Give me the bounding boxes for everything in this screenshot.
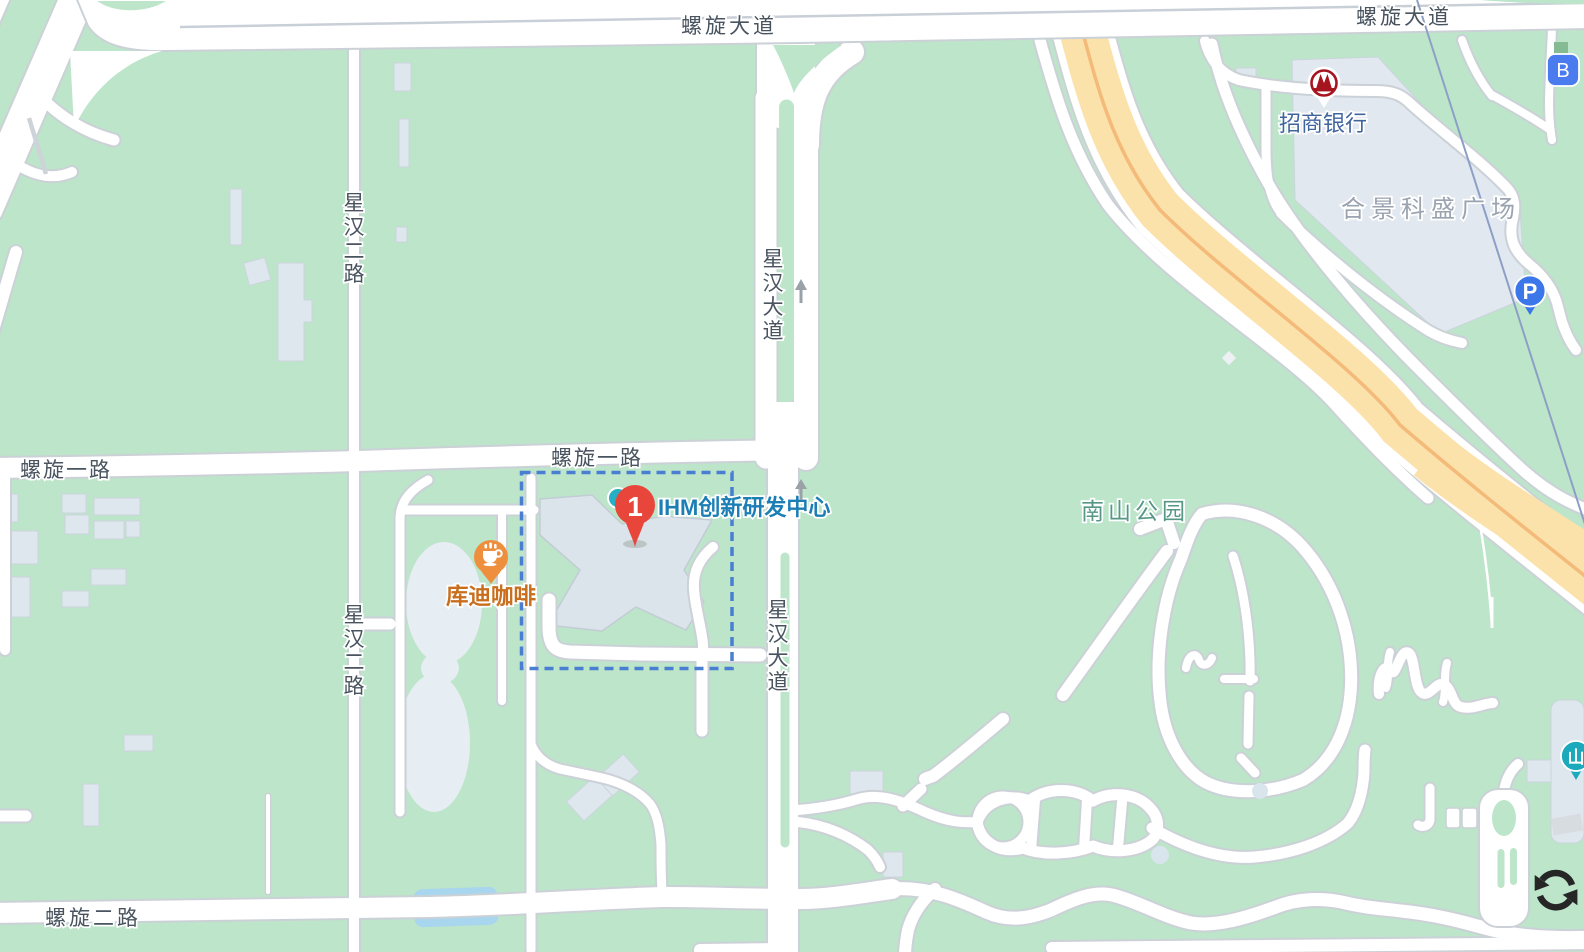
svg-text:合景科盛广场: 合景科盛广场 <box>1341 196 1521 223</box>
svg-text:P: P <box>1523 279 1538 304</box>
svg-text:螺旋二路: 螺旋二路 <box>45 907 141 930</box>
svg-text:IHM创新研发中心: IHM创新研发中心 <box>658 495 830 520</box>
svg-text:招商银行: 招商银行 <box>1279 111 1367 136</box>
svg-text:B: B <box>1556 60 1569 82</box>
svg-text:螺旋大道: 螺旋大道 <box>681 15 777 38</box>
svg-text:星: 星 <box>344 192 365 215</box>
svg-text:螺旋一路: 螺旋一路 <box>20 459 112 482</box>
svg-text:螺旋大道: 螺旋大道 <box>1356 6 1452 29</box>
svg-text:道: 道 <box>763 320 784 343</box>
svg-text:路: 路 <box>344 675 365 698</box>
svg-text:道: 道 <box>768 671 789 694</box>
svg-text:路: 路 <box>344 263 365 286</box>
svg-text:汉: 汉 <box>763 272 784 295</box>
svg-text:库迪咖啡: 库迪咖啡 <box>446 584 537 609</box>
svg-text:汉: 汉 <box>344 216 365 239</box>
svg-text:星: 星 <box>763 248 784 271</box>
svg-text:山: 山 <box>1568 748 1584 767</box>
svg-text:汉: 汉 <box>768 623 789 646</box>
svg-text:星: 星 <box>344 604 365 627</box>
svg-text:南山公园: 南山公园 <box>1081 498 1189 524</box>
svg-text:星: 星 <box>768 599 789 622</box>
svg-text:螺旋一路: 螺旋一路 <box>551 447 643 470</box>
svg-text:二: 二 <box>344 651 365 674</box>
svg-text:汉: 汉 <box>344 628 365 651</box>
svg-text:二: 二 <box>344 240 365 263</box>
svg-text:大: 大 <box>768 647 789 670</box>
svg-text:1: 1 <box>627 491 643 522</box>
svg-text:大: 大 <box>763 296 784 319</box>
